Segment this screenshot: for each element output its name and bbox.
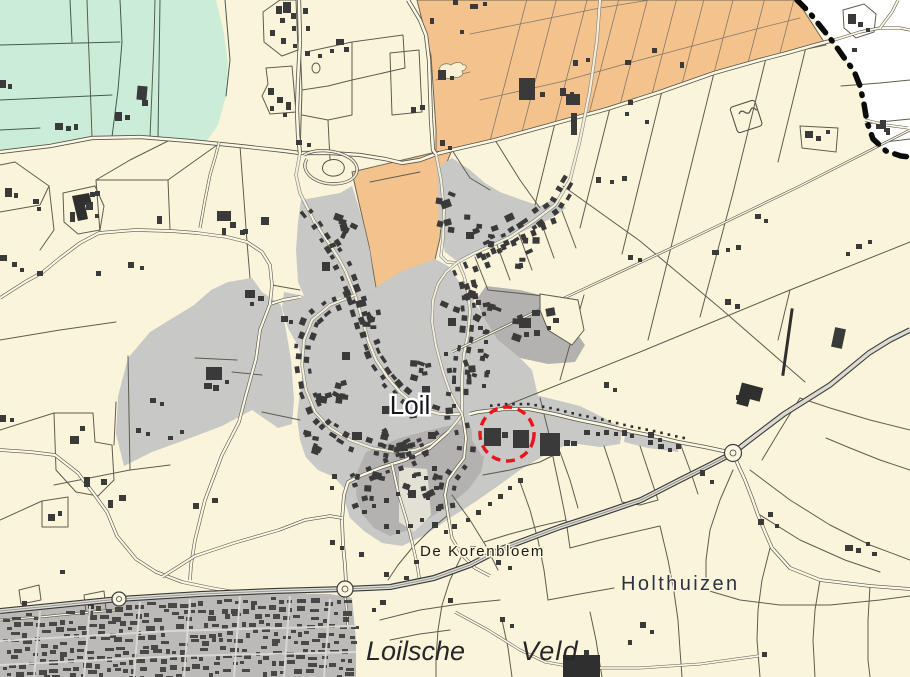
svg-text:Loil: Loil bbox=[390, 390, 430, 420]
svg-text:Loilsche: Loilsche bbox=[366, 636, 465, 666]
svg-text:De Korenbloem: De Korenbloem bbox=[420, 543, 545, 560]
svg-text:Veld: Veld bbox=[521, 636, 579, 666]
svg-text:Holthuizen: Holthuizen bbox=[621, 573, 740, 595]
